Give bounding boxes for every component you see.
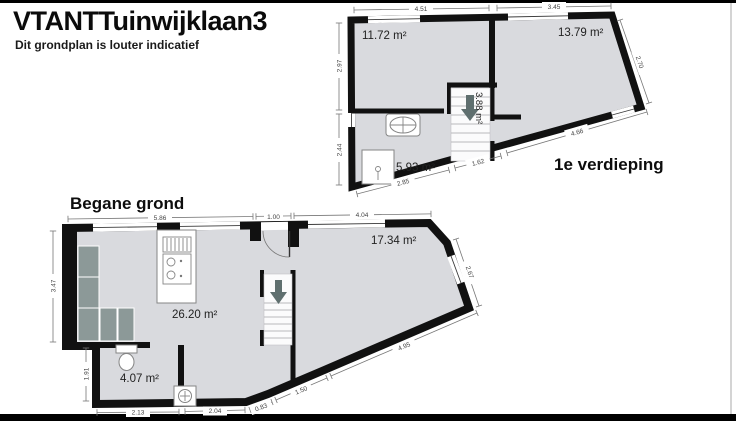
- ground-floor-name: Begane grond: [70, 194, 184, 213]
- kitchen-island: [157, 230, 196, 303]
- svg-text:5.86: 5.86: [154, 215, 167, 222]
- svg-text:2.44: 2.44: [337, 143, 344, 156]
- svg-text:2.97: 2.97: [337, 59, 344, 72]
- window: [308, 223, 385, 224]
- stairs-area-label: 3.88 m²: [473, 92, 484, 124]
- dim-ff-left-upper: 2.97: [334, 23, 344, 110]
- sink-icon: [386, 114, 420, 136]
- shower-icon: [362, 150, 394, 184]
- dim-ff-left-lower: 2.44: [334, 114, 344, 185]
- room-label-toilet: 4.07 m²: [120, 373, 159, 385]
- top-border-bar: [0, 0, 736, 3]
- svg-text:1.91: 1.91: [84, 367, 91, 380]
- room-label-bathroom: 5.93 m²: [396, 162, 435, 174]
- window: [93, 227, 157, 228]
- svg-text:3.47: 3.47: [51, 279, 58, 292]
- dim-ff-top-right: 3.45: [497, 2, 611, 11]
- window: [180, 226, 240, 227]
- window: [508, 16, 568, 17]
- dim-ff-top-left: 4.51: [354, 4, 489, 13]
- bottom-border-bar: [0, 414, 736, 421]
- dim-gf-top-door: 1.00: [256, 212, 291, 221]
- floorplan-drawing: 3.88 m² 11.72 m² 13.79 m² 5.93 m² 1e ver…: [0, 0, 736, 421]
- room-label-front: 17.34 m²: [371, 235, 417, 247]
- window: [368, 19, 420, 20]
- thick-left-wall: [66, 229, 77, 346]
- svg-text:3.45: 3.45: [548, 4, 561, 11]
- room-label-right: 13.79 m²: [558, 27, 604, 39]
- room-label-living: 26.20 m²: [172, 309, 218, 321]
- floorplan-page: VTANTTuinwijklaan3 Dit grondplan is lout…: [0, 0, 736, 421]
- svg-text:2.04: 2.04: [209, 408, 222, 415]
- dim-gf-left-lower: 1.91: [81, 348, 91, 401]
- svg-text:4.51: 4.51: [415, 6, 428, 13]
- svg-text:1.00: 1.00: [267, 214, 280, 221]
- svg-text:4.04: 4.04: [356, 212, 369, 219]
- stairs-first-floor: 3.88 m²: [451, 88, 490, 161]
- dim-gf-left-upper: 3.47: [48, 231, 58, 342]
- svg-text:2.13: 2.13: [132, 410, 145, 417]
- room-label-left: 11.72 m²: [362, 30, 407, 42]
- dim-gf-top-left: 5.86: [68, 213, 253, 222]
- first-floor-name: 1e verdieping: [554, 155, 664, 174]
- stairs-ground-floor: [264, 274, 292, 345]
- ground-floor-plan: 26.20 m² 17.34 m² 4.07 m² Begane grond 5…: [48, 194, 479, 417]
- first-floor-plan: 3.88 m² 11.72 m² 13.79 m² 5.93 m² 1e ver…: [334, 2, 664, 194]
- washbasin-icon: [174, 386, 196, 406]
- dim-gf-top-right: 4.04: [294, 210, 431, 219]
